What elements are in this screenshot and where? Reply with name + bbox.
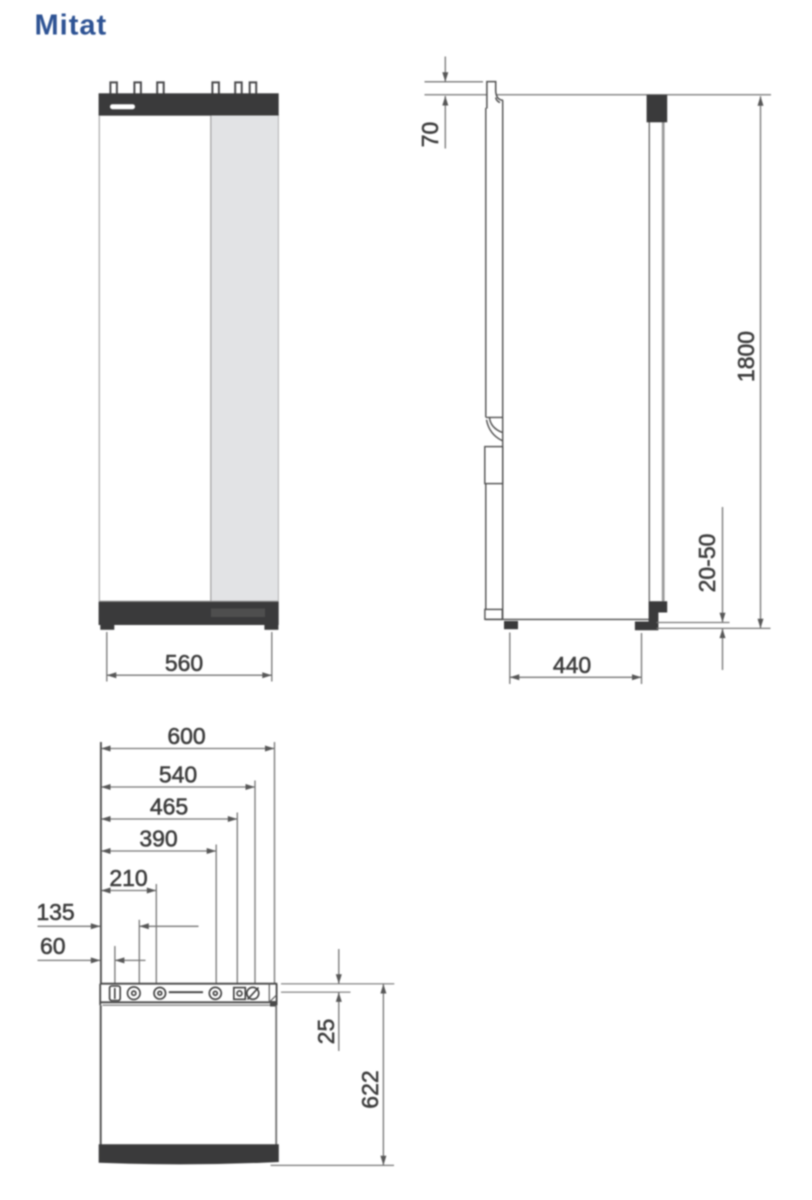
svg-text:135: 135 [36,899,74,925]
svg-text:465: 465 [150,794,188,820]
svg-text:210: 210 [109,865,147,891]
svg-text:560: 560 [165,650,203,676]
svg-text:60: 60 [40,933,66,959]
svg-text:Mitat: Mitat [35,10,108,42]
svg-text:20-50: 20-50 [694,534,720,593]
svg-text:70: 70 [417,122,443,148]
svg-text:25: 25 [313,1019,339,1045]
svg-text:540: 540 [159,762,197,788]
svg-text:1800: 1800 [733,331,759,382]
svg-text:390: 390 [139,826,177,852]
svg-text:600: 600 [167,723,205,749]
svg-text:622: 622 [357,1070,383,1108]
svg-text:440: 440 [553,652,591,678]
